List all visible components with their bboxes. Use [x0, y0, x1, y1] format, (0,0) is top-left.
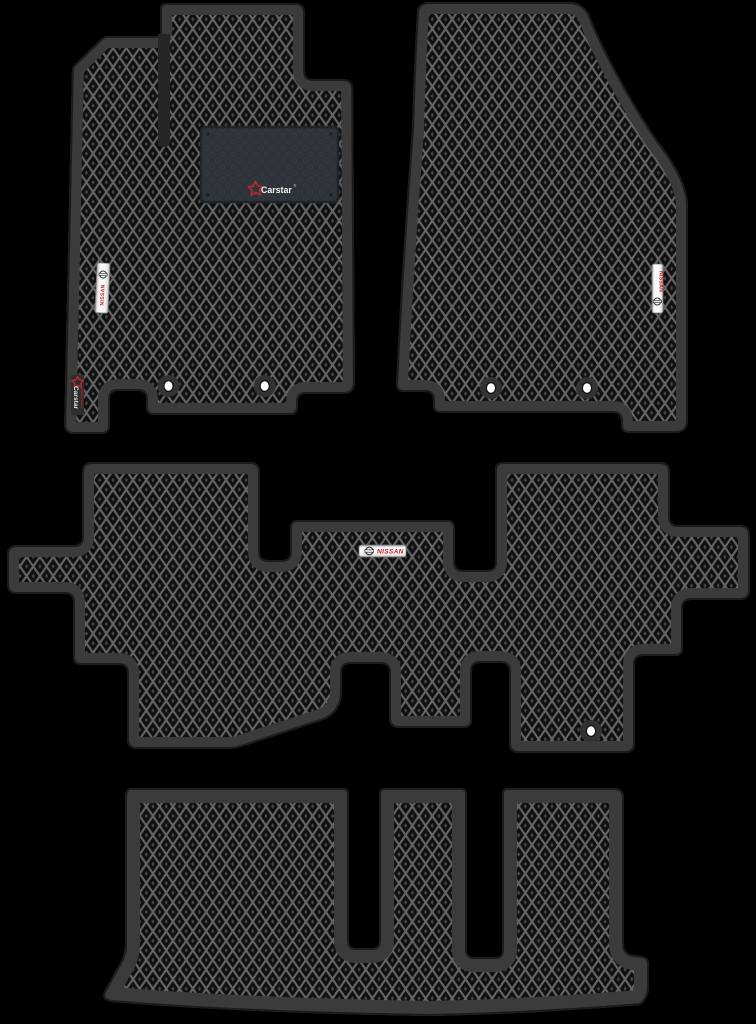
svg-text:Carstar: Carstar [261, 185, 292, 195]
svg-text:®: ® [294, 184, 297, 188]
svg-text:Carstar: Carstar [72, 386, 79, 410]
svg-text:NISSAN: NISSAN [100, 284, 107, 305]
svg-text:NISSAN: NISSAN [377, 549, 404, 556]
svg-text:NISSAN: NISSAN [658, 271, 664, 292]
